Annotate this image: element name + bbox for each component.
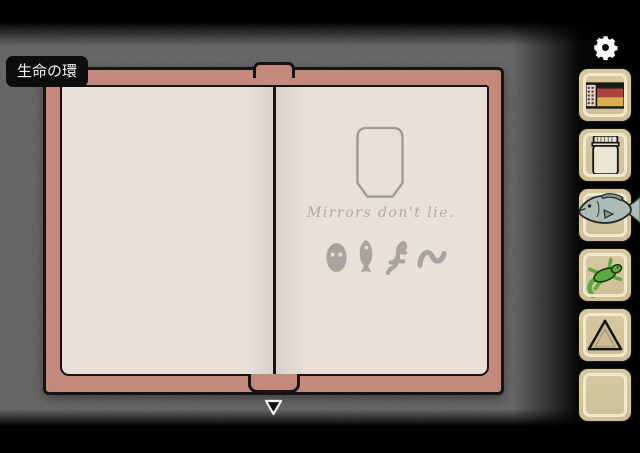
book-spine	[273, 87, 276, 374]
book-spine-tab-bottom	[248, 374, 300, 393]
inventory-slot-lizard[interactable]	[578, 248, 632, 302]
inventory-bar	[578, 68, 632, 428]
gear-icon[interactable]	[592, 34, 619, 61]
inventory-slot-jar[interactable]	[578, 128, 632, 182]
inventory-slot-triangle[interactable]	[578, 308, 632, 362]
page-symbols	[324, 238, 449, 276]
inventory-slot-empty[interactable]	[578, 368, 632, 422]
inventory-slot-matchbox[interactable]	[578, 68, 632, 122]
lizard-icon	[580, 252, 630, 298]
inventory-slot-fish[interactable]	[578, 188, 632, 242]
slot-frame	[583, 193, 627, 237]
alien-head-symbol-icon	[324, 241, 349, 274]
mirror-outline-drawing	[355, 126, 405, 200]
lizard-symbol-icon	[383, 239, 410, 276]
location-label: 生命の環	[6, 56, 88, 87]
worm-symbol-icon	[416, 245, 449, 270]
slot-frame	[583, 373, 627, 417]
game-screen: Mirrors don't lie. 生命の環	[0, 0, 640, 453]
open-book[interactable]	[43, 67, 504, 395]
matchbox-icon	[584, 82, 626, 109]
page-quote: Mirrors don't lie.	[291, 205, 471, 221]
down-arrow-icon[interactable]	[263, 399, 284, 416]
fish-symbol-icon	[355, 239, 377, 275]
book-spine-tab-top	[253, 62, 295, 78]
triangle-icon	[586, 318, 624, 352]
book-page-left[interactable]	[62, 87, 275, 374]
jar-icon	[589, 134, 622, 176]
book-pages	[60, 85, 489, 376]
